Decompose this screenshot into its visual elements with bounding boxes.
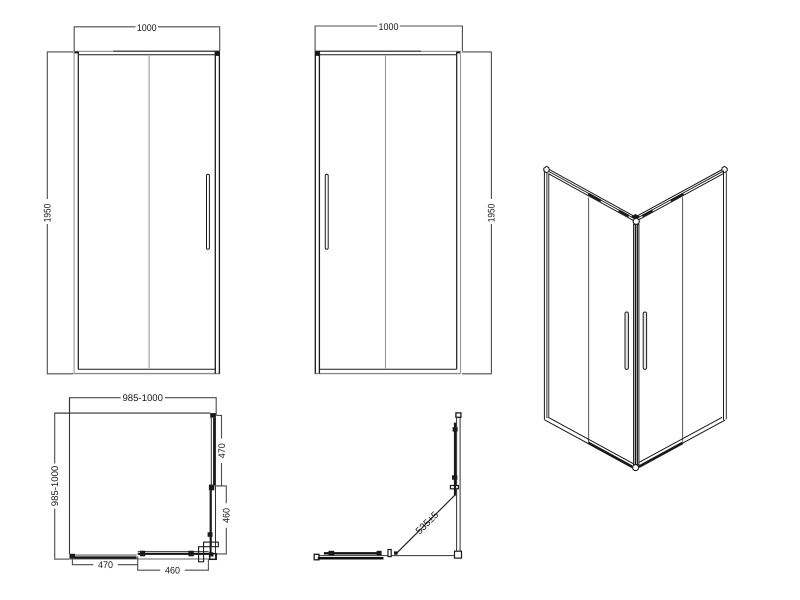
svg-text:1000: 1000 — [137, 23, 157, 34]
svg-text:470: 470 — [217, 443, 228, 458]
svg-text:1950: 1950 — [43, 204, 54, 223]
svg-text:985-1000: 985-1000 — [50, 466, 61, 507]
svg-text:1950: 1950 — [487, 204, 498, 223]
svg-text:460: 460 — [165, 566, 180, 577]
svg-text:1000: 1000 — [379, 22, 399, 33]
svg-text:460: 460 — [222, 508, 233, 523]
svg-text:985-1000: 985-1000 — [122, 393, 163, 404]
svg-text:470: 470 — [98, 560, 113, 571]
